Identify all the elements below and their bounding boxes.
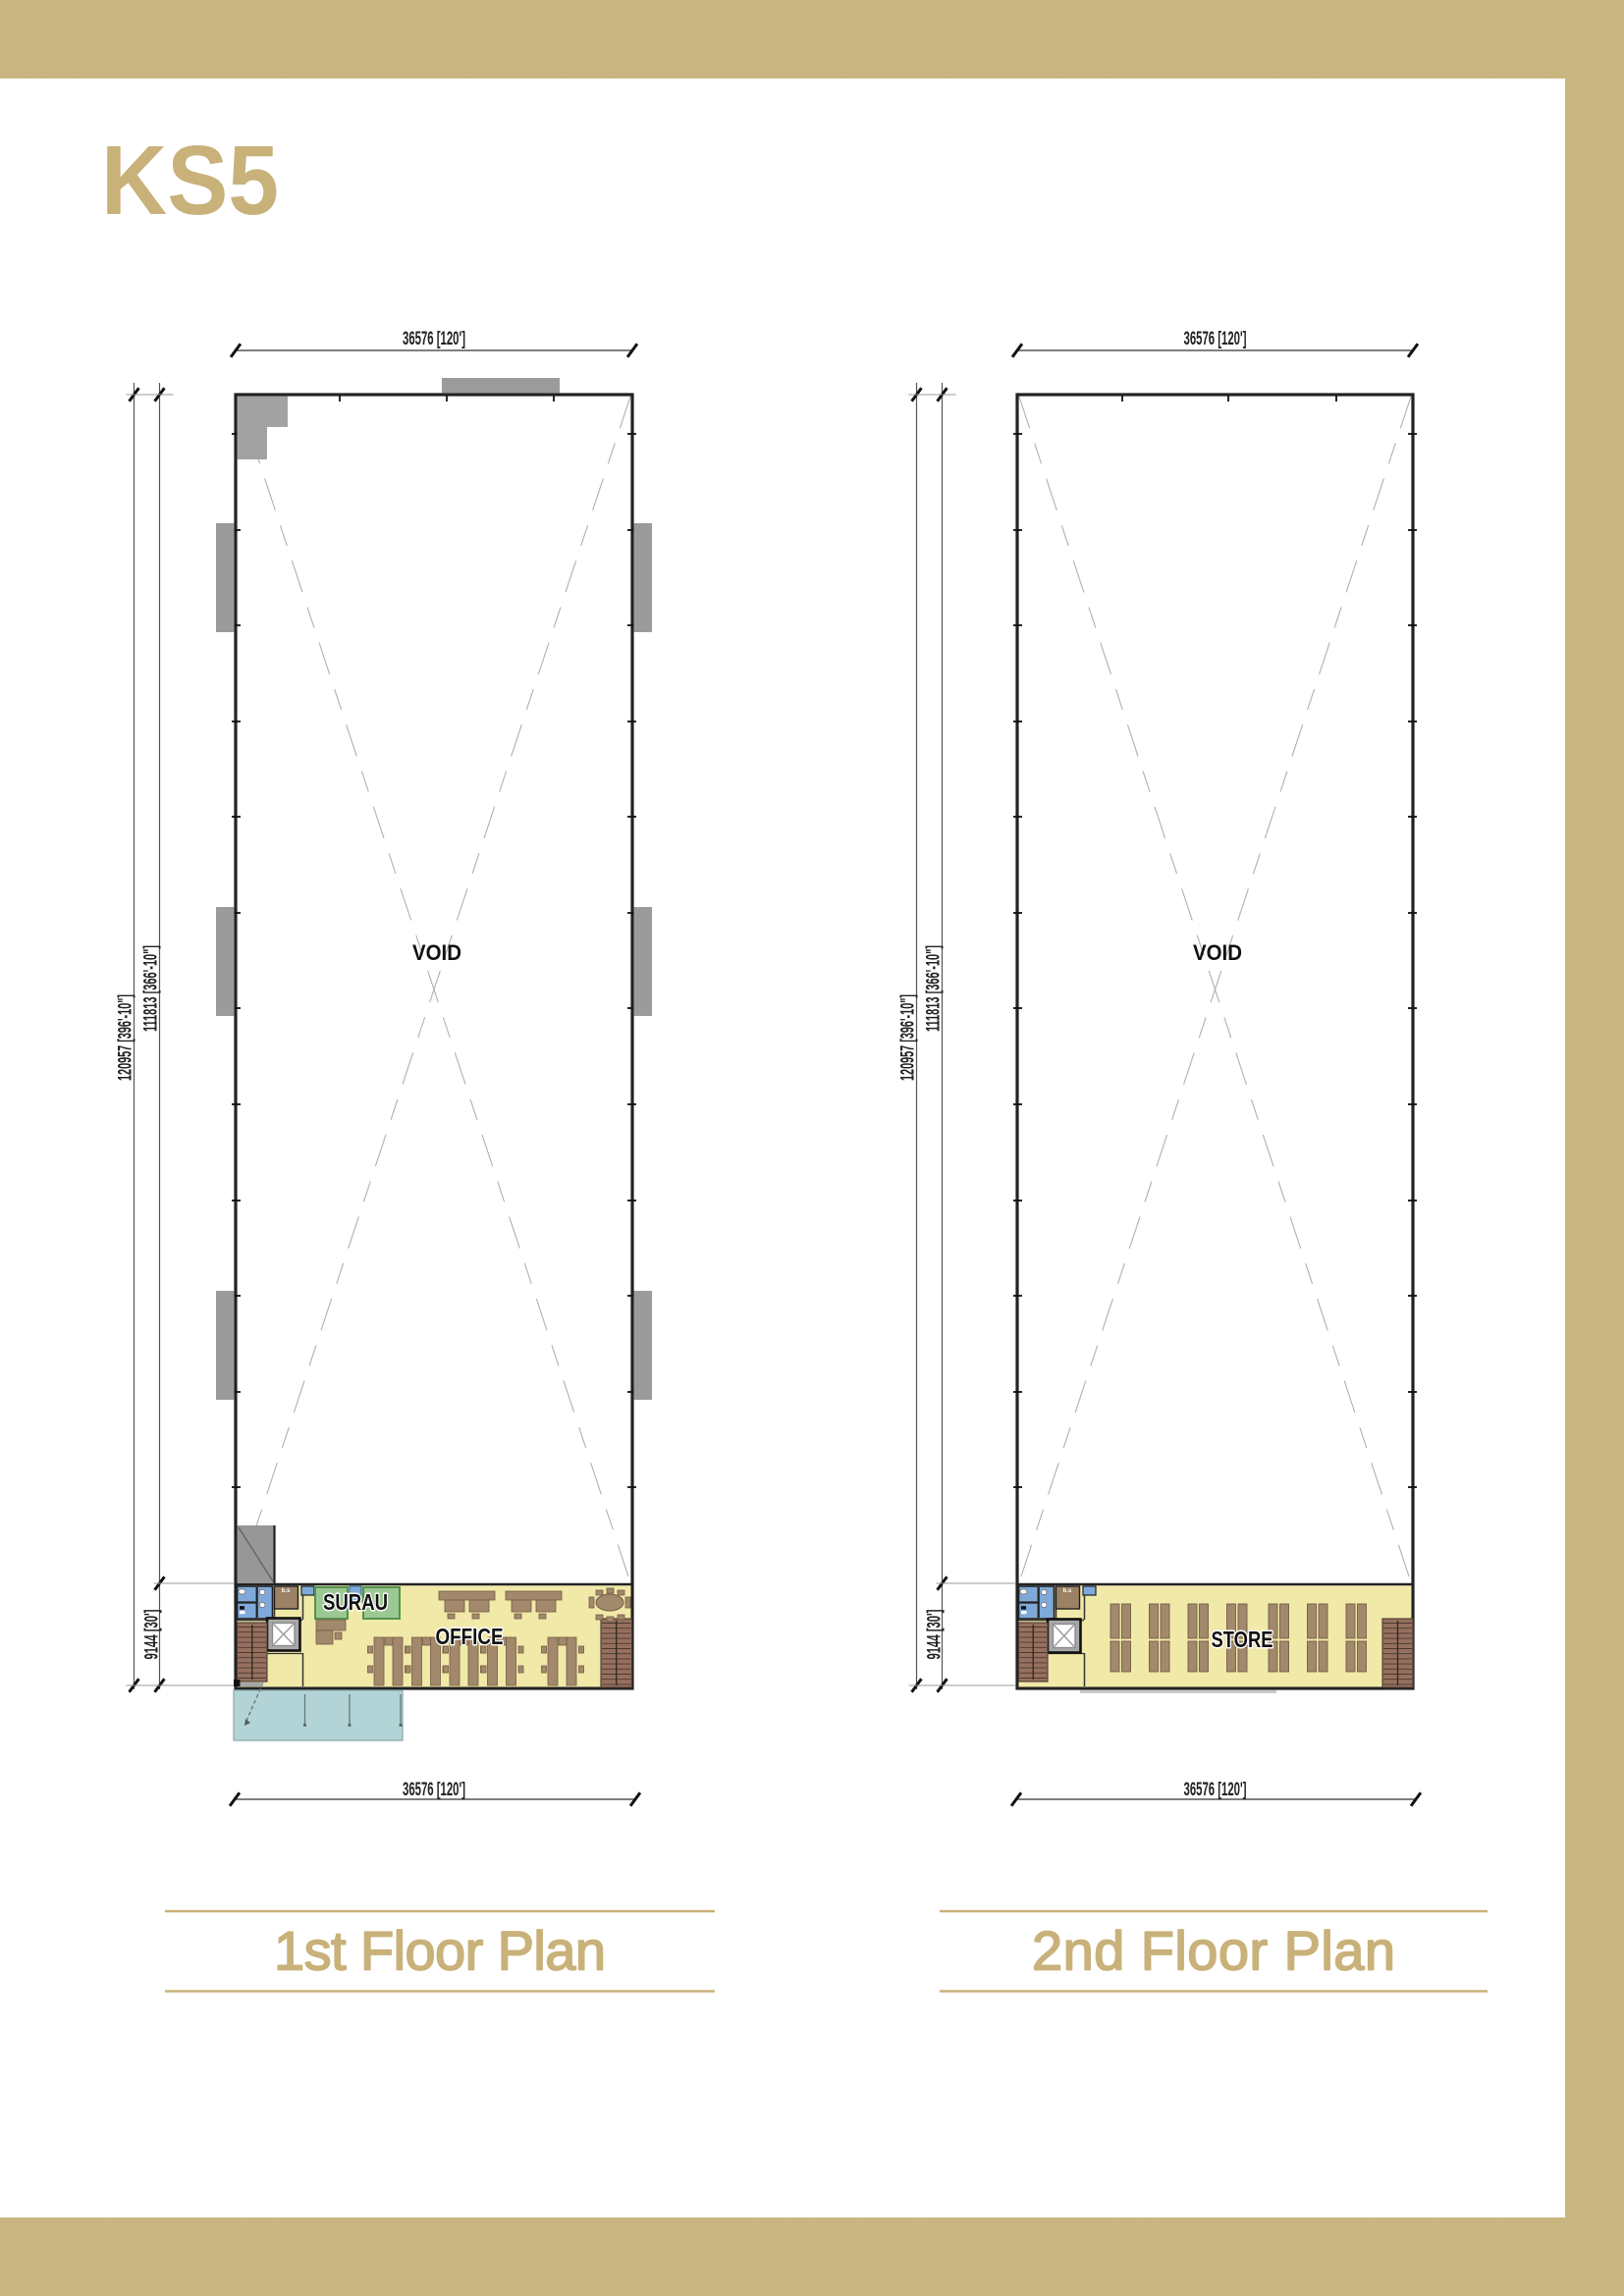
svg-text:SURAU: SURAU (323, 1589, 388, 1615)
svg-text:KS5: KS5 (101, 126, 279, 236)
svg-text:2nd Floor Plan: 2nd Floor Plan (1032, 1920, 1395, 1982)
svg-text:36576 [120']: 36576 [120'] (1184, 329, 1247, 349)
svg-text:120957 [396'-10"]: 120957 [396'-10"] (898, 994, 919, 1081)
svg-text:111813 [366'-10"]: 111813 [366'-10"] (141, 945, 162, 1032)
svg-text:b.s: b.s (1063, 1588, 1072, 1594)
svg-text:VOID: VOID (412, 940, 461, 965)
svg-text:36576 [120']: 36576 [120'] (1184, 1780, 1247, 1800)
svg-text:STORE: STORE (1212, 1627, 1273, 1652)
svg-text:36576 [120']: 36576 [120'] (403, 329, 465, 349)
svg-text:VOID: VOID (1193, 940, 1242, 965)
svg-text:120957 [396'-10"]: 120957 [396'-10"] (116, 994, 136, 1081)
svg-text:1st Floor Plan: 1st Floor Plan (274, 1920, 606, 1982)
svg-text:OFFICE: OFFICE (436, 1624, 504, 1649)
svg-text:9144 [30']: 9144 [30'] (142, 1610, 163, 1660)
svg-text:111813 [366'-10"]: 111813 [366'-10"] (924, 945, 945, 1032)
svg-text:36576 [120']: 36576 [120'] (403, 1780, 465, 1800)
svg-text:9144 [30']: 9144 [30'] (925, 1610, 946, 1660)
svg-text:b.s: b.s (282, 1588, 291, 1594)
